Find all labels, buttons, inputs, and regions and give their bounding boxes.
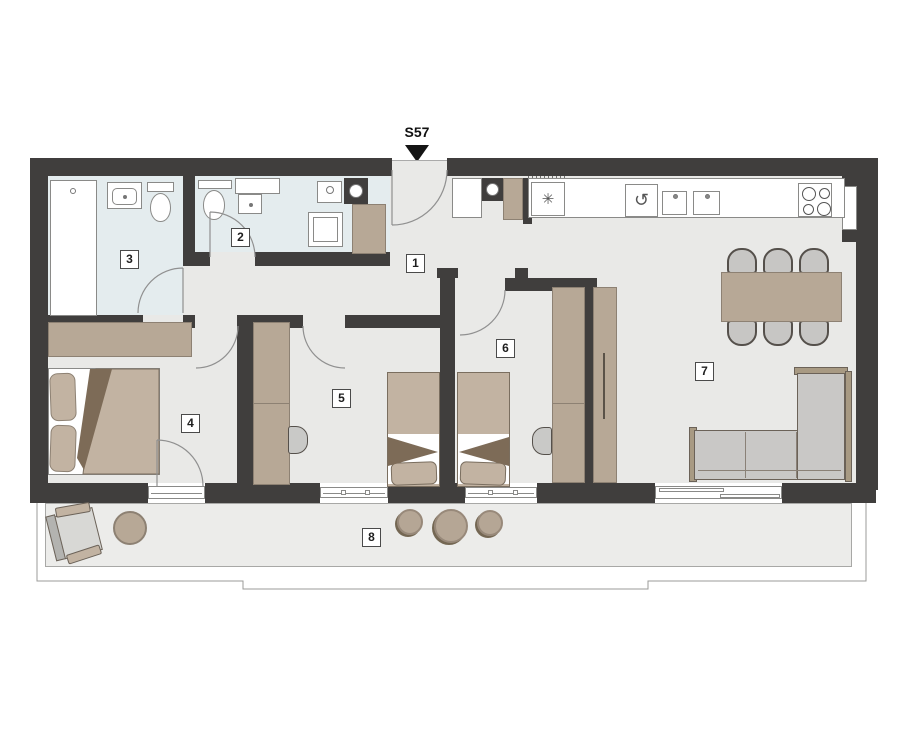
wall-top-right <box>447 158 878 176</box>
kitchen-sink-2 <box>693 191 720 215</box>
wall-room5-top-b <box>345 315 440 328</box>
sofa-seat-vertical <box>797 373 845 480</box>
burner-icon <box>817 202 831 216</box>
right-window-stub-bottom <box>842 230 857 242</box>
floorplan-canvas: S57 <box>0 0 900 740</box>
room-label-8: 8 <box>362 528 381 547</box>
sofa-back-right <box>845 371 852 482</box>
room-label-6: 6 <box>496 339 515 358</box>
living-sliding-door <box>655 486 782 499</box>
shower <box>50 180 97 316</box>
sliding-panel <box>720 494 780 498</box>
oven-icon: ↺ <box>625 184 658 217</box>
wardrobe-handle <box>603 353 605 419</box>
sink-drain-icon <box>249 203 253 207</box>
sink-drain-icon <box>123 195 127 199</box>
room6-bed-cushion <box>460 461 507 486</box>
fridge-icon: ✳ <box>531 182 565 216</box>
wall-bath2-bottom-b <box>255 252 390 266</box>
room-label-4: 4 <box>181 414 200 433</box>
wall-bottom-5 <box>782 483 876 503</box>
appliance-large <box>308 212 343 247</box>
bath3-toilet-tank <box>147 182 174 192</box>
faucet-icon <box>705 194 710 199</box>
appliance-small <box>317 181 342 203</box>
room-label-3: 3 <box>120 250 139 269</box>
wall-bottom-2 <box>205 483 320 503</box>
hall-cabinet <box>503 178 523 220</box>
wall-room4-room5 <box>237 315 253 483</box>
kitchen-sink-1 <box>662 191 687 215</box>
cooktop <box>798 183 832 217</box>
burner-icon <box>802 187 816 201</box>
room4-wardrobe <box>48 322 192 357</box>
wall-left <box>30 176 48 497</box>
faucet-icon <box>673 194 678 199</box>
washer-niche-dark <box>344 178 368 204</box>
pillow <box>49 373 77 422</box>
living-wardrobe <box>593 287 617 483</box>
cabinet-split <box>553 403 584 404</box>
appliance-door <box>313 217 338 242</box>
room5-desk-chair <box>288 426 308 454</box>
dining-chair <box>763 248 793 274</box>
room5-bed-cushion <box>391 461 438 486</box>
wall-top-left <box>30 158 392 176</box>
dining-chair <box>727 248 757 274</box>
room-label-5: 5 <box>332 389 351 408</box>
sofa-seam <box>745 432 746 478</box>
hall-niche <box>452 178 482 218</box>
sofa-seam <box>698 470 841 471</box>
burner-icon <box>819 188 830 199</box>
dining-table <box>721 272 842 322</box>
terrace-side-table <box>113 511 147 545</box>
bath2-counter <box>235 178 280 194</box>
sliding-panel <box>659 488 724 492</box>
bath2-sink <box>238 194 262 214</box>
dining-chair <box>799 320 829 346</box>
washer-drum-icon <box>486 183 499 196</box>
glass-line <box>151 493 202 494</box>
wall-right <box>856 176 878 490</box>
glass-line <box>468 493 534 494</box>
cabinet-split <box>254 403 289 404</box>
room5-wardrobe-desk <box>253 322 290 485</box>
room-label-2: 2 <box>231 228 250 247</box>
appliance-dial-icon <box>326 186 334 194</box>
glass-line <box>323 493 385 494</box>
washer-drum-icon <box>349 184 363 198</box>
entrance-threshold <box>392 160 447 177</box>
wall-room6-nub <box>515 268 528 280</box>
window-tick <box>488 490 493 495</box>
dining-chair <box>763 320 793 346</box>
terrace-stool <box>434 509 468 543</box>
hall-washer-dark <box>482 178 503 201</box>
terrace-stool <box>477 510 503 536</box>
room6-desk-chair <box>532 427 552 455</box>
wall-bottom-4 <box>537 483 655 503</box>
bath2-toilet-tank <box>198 180 232 189</box>
room5-window <box>320 487 388 498</box>
pillow <box>49 425 77 473</box>
wall-bath2-bottom-a <box>183 252 210 266</box>
window-tick <box>513 490 518 495</box>
bath3-toilet-bowl <box>150 193 171 222</box>
bath2-cabinet <box>352 204 386 254</box>
room-label-1: 1 <box>406 254 425 273</box>
unit-label: S57 <box>396 124 438 140</box>
window-tick <box>365 490 370 495</box>
room6-wardrobe-desk <box>552 287 585 483</box>
terrace-stool <box>397 509 423 535</box>
room6-window <box>465 487 537 498</box>
wall-room5-room6 <box>440 272 455 483</box>
bath2-toilet-bowl <box>203 190 225 220</box>
dining-chair <box>799 248 829 274</box>
room4-terrace-door <box>148 486 205 499</box>
window-tick <box>341 490 346 495</box>
sofa-seam <box>796 432 797 478</box>
dining-chair <box>727 320 757 346</box>
burner-icon <box>803 204 814 215</box>
bath3-sink <box>107 182 142 209</box>
shower-drain-icon <box>70 188 76 194</box>
room-label-7: 7 <box>695 362 714 381</box>
